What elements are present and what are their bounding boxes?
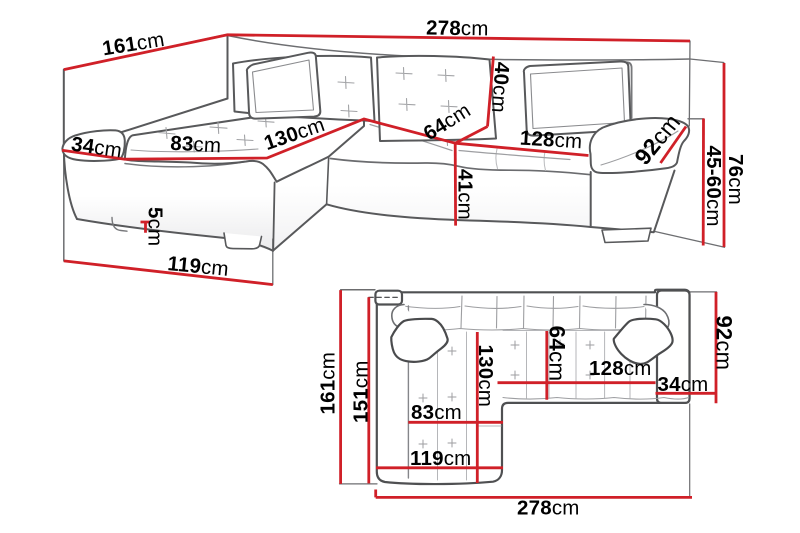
svg-text:151cm: 151cm xyxy=(350,360,373,423)
svg-text:41cm: 41cm xyxy=(454,169,477,220)
svg-text:130cm: 130cm xyxy=(474,345,497,408)
svg-text:76cm: 76cm xyxy=(724,154,747,205)
svg-text:45-60cm: 45-60cm xyxy=(702,146,725,227)
svg-text:161cm: 161cm xyxy=(317,352,340,415)
svg-text:92cm: 92cm xyxy=(712,316,737,371)
svg-text:128cm: 128cm xyxy=(589,357,652,380)
svg-text:83cm: 83cm xyxy=(170,132,222,158)
svg-text:119cm: 119cm xyxy=(410,447,471,470)
svg-text:40cm: 40cm xyxy=(487,61,513,113)
svg-text:128cm: 128cm xyxy=(519,127,583,154)
svg-text:278cm: 278cm xyxy=(426,17,489,41)
svg-text:83cm: 83cm xyxy=(411,401,462,424)
svg-text:5cm: 5cm xyxy=(144,207,167,246)
svg-text:34cm: 34cm xyxy=(658,373,709,396)
svg-text:278cm: 278cm xyxy=(517,497,580,520)
svg-text:64cm: 64cm xyxy=(545,326,570,382)
